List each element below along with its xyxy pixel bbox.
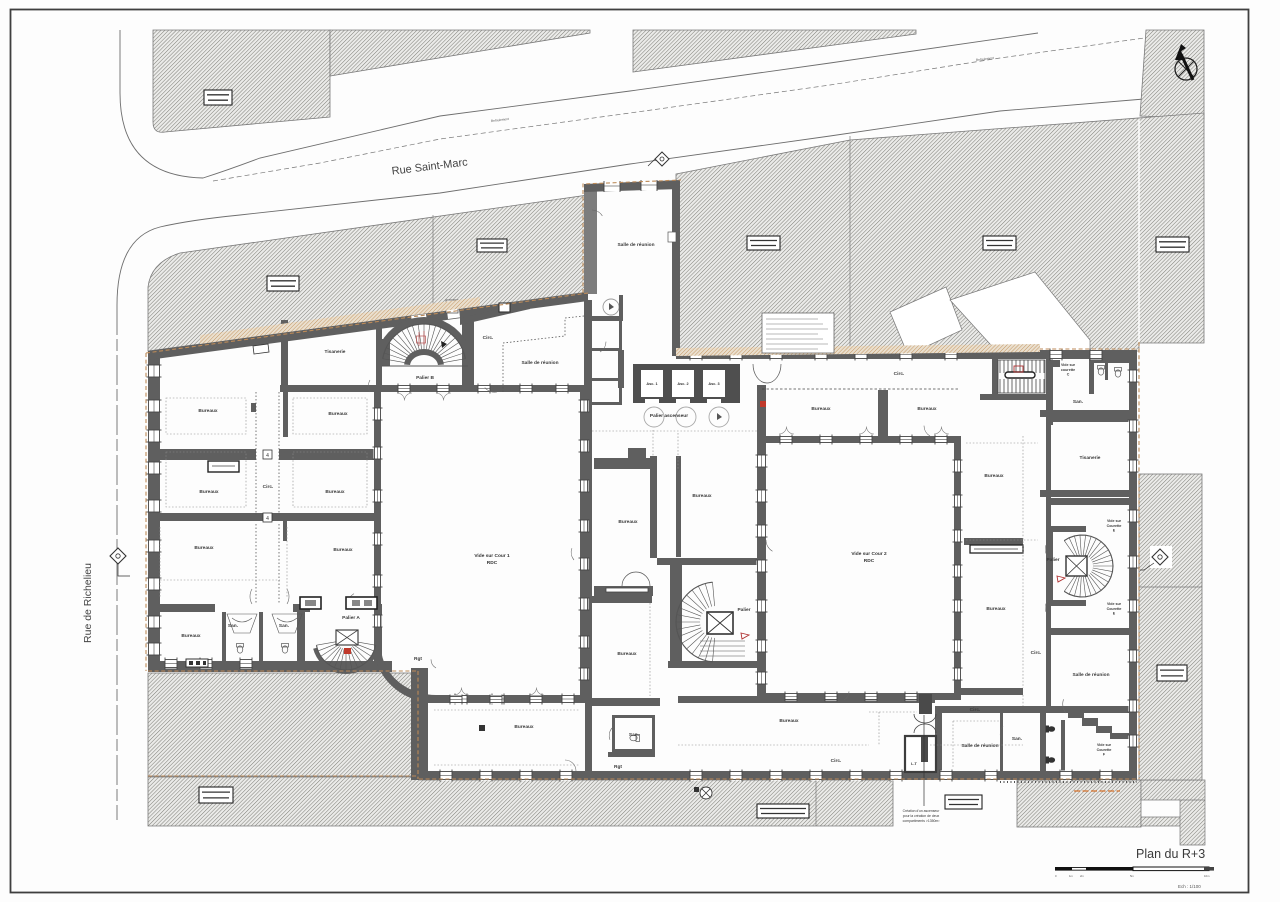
- svg-text:Bureaux: Bureaux: [514, 724, 534, 730]
- svg-text:courette: courette: [1061, 368, 1075, 372]
- svg-text:Palier: Palier: [1046, 557, 1059, 563]
- svg-text:Bureaux: Bureaux: [779, 718, 799, 724]
- svg-text:Palier A: Palier A: [342, 615, 360, 621]
- svg-text:Palier B: Palier B: [416, 375, 434, 381]
- svg-text:Circ.: Circ.: [263, 484, 274, 490]
- svg-text:Vide sur Cour 1: Vide sur Cour 1: [474, 553, 510, 559]
- svg-text:Courette: Courette: [1097, 748, 1112, 752]
- svg-text:Salle de réunion: Salle de réunion: [617, 242, 654, 248]
- svg-text:Bureaux: Bureaux: [811, 406, 831, 412]
- svg-text:San.: San.: [279, 623, 289, 629]
- svg-text:Circ.: Circ.: [483, 335, 494, 341]
- svg-text:Asc. 1: Asc. 1: [646, 382, 657, 386]
- svg-text:Rgt: Rgt: [614, 764, 622, 770]
- svg-text:Asc. 3: Asc. 3: [708, 382, 719, 386]
- svg-text:Bureaux: Bureaux: [984, 473, 1004, 479]
- svg-text:San.: San.: [228, 623, 238, 629]
- svg-text:Tisanerie: Tisanerie: [1080, 455, 1101, 461]
- svg-text:Circ.: Circ.: [894, 371, 905, 377]
- svg-text:Salle de réunion: Salle de réunion: [961, 743, 998, 749]
- svg-text:RDC: RDC: [487, 560, 498, 566]
- svg-text:L.T: L.T: [911, 762, 917, 766]
- svg-text:Salle de réunion: Salle de réunion: [521, 360, 558, 366]
- svg-text:pour la création de deux: pour la création de deux: [903, 814, 940, 818]
- svg-text:Courette: Courette: [1107, 524, 1122, 528]
- svg-text:4: 4: [266, 453, 269, 459]
- svg-text:San.: San.: [1073, 399, 1083, 405]
- svg-text:San.: San.: [1012, 736, 1022, 742]
- svg-text:Plan du R+3: Plan du R+3: [1136, 847, 1205, 861]
- svg-text:Bureaux: Bureaux: [198, 408, 218, 414]
- svg-text:Bureaux: Bureaux: [194, 545, 214, 551]
- svg-text:Vide sur: Vide sur: [1097, 743, 1112, 747]
- svg-text:Rgt: Rgt: [414, 656, 422, 662]
- svg-text:Bureaux: Bureaux: [333, 547, 353, 553]
- svg-text:5m: 5m: [1130, 874, 1135, 878]
- svg-text:Ech : 1/100: Ech : 1/100: [1178, 884, 1201, 889]
- svg-text:Bureaux: Bureaux: [917, 406, 937, 412]
- svg-text:1m: 1m: [1069, 874, 1074, 878]
- svg-text:RDC: RDC: [864, 558, 875, 564]
- svg-text:Circ.: Circ.: [970, 707, 981, 713]
- svg-text:Bureaux: Bureaux: [618, 519, 638, 525]
- svg-text:Bureaux: Bureaux: [692, 493, 712, 499]
- svg-text:Création d'un ascenseur: Création d'un ascenseur: [903, 809, 941, 813]
- svg-text:Palier: Palier: [737, 607, 750, 613]
- svg-text:Vide sur: Vide sur: [1061, 363, 1076, 367]
- svg-text:Courette: Courette: [1107, 607, 1122, 611]
- svg-text:2m: 2m: [1080, 874, 1085, 878]
- svg-text:4: 4: [266, 516, 269, 522]
- svg-text:Asc. 2: Asc. 2: [677, 382, 688, 386]
- svg-text:San.: San.: [629, 732, 639, 738]
- svg-text:Bureaux: Bureaux: [986, 606, 1006, 612]
- svg-text:Vide sur: Vide sur: [1107, 602, 1122, 606]
- svg-text:Palier ascenseur: Palier ascenseur: [650, 413, 688, 419]
- svg-text:Bureaux: Bureaux: [199, 489, 219, 495]
- svg-text:Salle de réunion: Salle de réunion: [1072, 672, 1109, 678]
- svg-text:Circ.: Circ.: [1031, 650, 1042, 656]
- svg-text:Bureaux: Bureaux: [617, 651, 637, 657]
- svg-text:compartiments >1350m²: compartiments >1350m²: [903, 819, 941, 823]
- svg-text:Vide sur: Vide sur: [1107, 519, 1122, 523]
- svg-text:Bureaux: Bureaux: [328, 411, 348, 417]
- svg-text:Bureaux: Bureaux: [325, 489, 345, 495]
- svg-text:Bureaux: Bureaux: [181, 633, 201, 639]
- svg-text:Tisanerie: Tisanerie: [325, 349, 346, 355]
- svg-text:10m: 10m: [1204, 874, 1210, 878]
- svg-text:Circ.: Circ.: [831, 758, 842, 764]
- svg-text:Vide sur Cour 2: Vide sur Cour 2: [851, 551, 887, 557]
- svg-text:Rue de Richelieu: Rue de Richelieu: [82, 563, 94, 643]
- svg-text:C: C: [1067, 373, 1070, 377]
